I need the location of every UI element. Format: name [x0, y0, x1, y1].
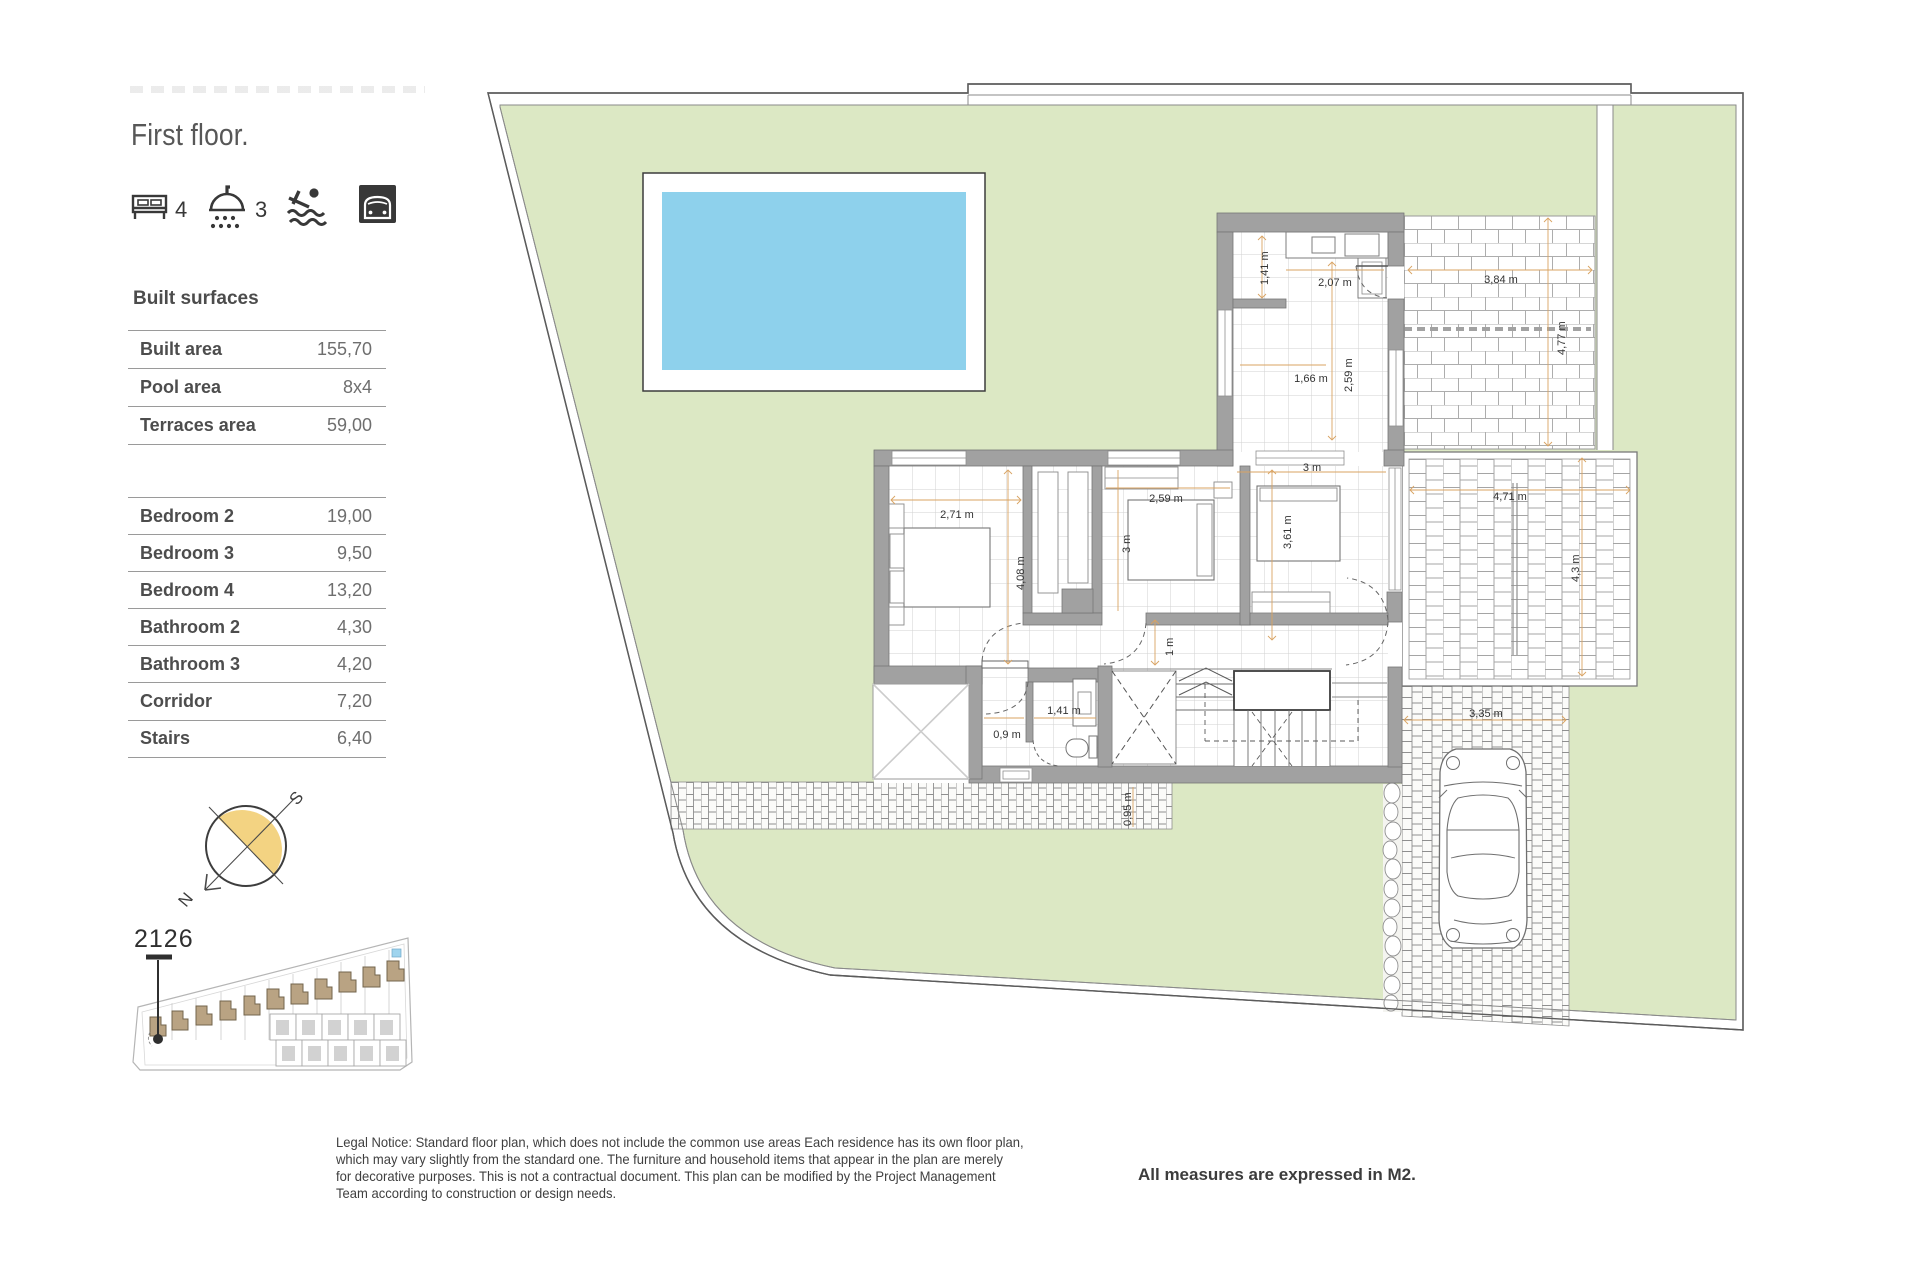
svg-text:4,77 m: 4,77 m — [1556, 321, 1568, 355]
svg-text:4,08 m: 4,08 m — [1015, 556, 1027, 590]
svg-text:3 m: 3 m — [1121, 535, 1133, 553]
svg-text:0,9 m: 0,9 m — [993, 729, 1021, 741]
svg-text:4: 4 — [175, 197, 187, 222]
svg-text:3,61 m: 3,61 m — [1282, 515, 1294, 549]
svg-text:0,95 m: 0,95 m — [1122, 792, 1134, 826]
svg-text:2,07 m: 2,07 m — [1318, 277, 1352, 289]
svg-text:S: S — [286, 788, 308, 809]
svg-text:3: 3 — [255, 197, 267, 222]
svg-text:2,59 m: 2,59 m — [1343, 358, 1355, 392]
svg-text:1,41 m: 1,41 m — [1259, 251, 1271, 285]
svg-text:4,71 m: 4,71 m — [1493, 491, 1527, 503]
svg-text:1,66 m: 1,66 m — [1294, 373, 1328, 385]
svg-text:1 m: 1 m — [1164, 638, 1176, 656]
svg-text:3,35 m: 3,35 m — [1469, 708, 1503, 720]
svg-text:4,3 m: 4,3 m — [1570, 554, 1582, 582]
svg-text:3 m: 3 m — [1303, 462, 1321, 474]
svg-text:N: N — [175, 889, 197, 911]
svg-text:2,59 m: 2,59 m — [1149, 493, 1183, 505]
svg-text:3,84 m: 3,84 m — [1484, 274, 1518, 286]
svg-text:2,71 m: 2,71 m — [940, 509, 974, 521]
svg-text:1,41 m: 1,41 m — [1047, 705, 1081, 717]
